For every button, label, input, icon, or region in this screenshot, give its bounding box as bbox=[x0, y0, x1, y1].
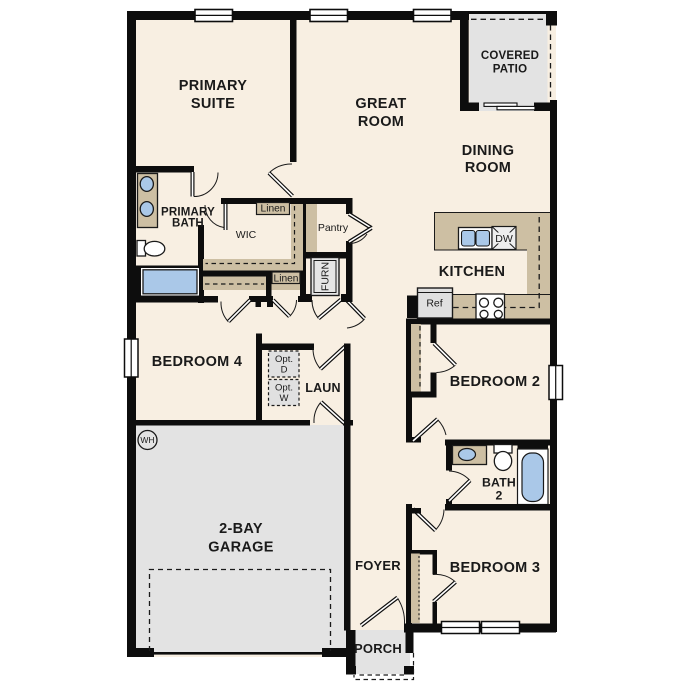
svg-text:DW: DW bbox=[495, 233, 513, 245]
svg-text:COVERED: COVERED bbox=[481, 50, 539, 62]
svg-text:BATH: BATH bbox=[482, 476, 516, 490]
svg-text:BATH: BATH bbox=[172, 218, 204, 230]
svg-text:Opt.: Opt. bbox=[275, 354, 293, 365]
svg-text:LAUN: LAUN bbox=[305, 381, 341, 395]
svg-text:2-BAY: 2-BAY bbox=[219, 521, 263, 537]
svg-text:WIC: WIC bbox=[236, 229, 257, 241]
svg-text:GREAT: GREAT bbox=[355, 96, 406, 112]
svg-text:PRIMARY: PRIMARY bbox=[179, 78, 247, 94]
svg-text:KITCHEN: KITCHEN bbox=[439, 264, 506, 280]
svg-text:BEDROOM 4: BEDROOM 4 bbox=[152, 354, 243, 370]
svg-text:DINING: DINING bbox=[462, 143, 515, 159]
svg-text:FURN: FURN bbox=[320, 262, 332, 291]
svg-text:ROOM: ROOM bbox=[358, 114, 404, 130]
svg-text:SUITE: SUITE bbox=[191, 96, 235, 112]
svg-text:Pantry: Pantry bbox=[318, 222, 349, 234]
svg-text:Ref: Ref bbox=[426, 298, 442, 310]
svg-text:Linen: Linen bbox=[261, 204, 286, 215]
svg-text:ROOM: ROOM bbox=[465, 160, 511, 176]
svg-text:Linen: Linen bbox=[274, 274, 299, 285]
svg-text:WH: WH bbox=[140, 435, 154, 445]
svg-text:GARAGE: GARAGE bbox=[208, 540, 273, 556]
svg-text:FOYER: FOYER bbox=[355, 558, 401, 573]
svg-text:W: W bbox=[280, 393, 289, 404]
svg-text:D: D bbox=[281, 365, 288, 376]
svg-text:Opt.: Opt. bbox=[275, 383, 293, 394]
svg-text:PORCH: PORCH bbox=[354, 641, 402, 656]
svg-text:BEDROOM 3: BEDROOM 3 bbox=[450, 560, 541, 576]
svg-text:BEDROOM 2: BEDROOM 2 bbox=[450, 374, 541, 390]
svg-text:2: 2 bbox=[495, 489, 502, 503]
svg-text:PATIO: PATIO bbox=[493, 64, 527, 76]
